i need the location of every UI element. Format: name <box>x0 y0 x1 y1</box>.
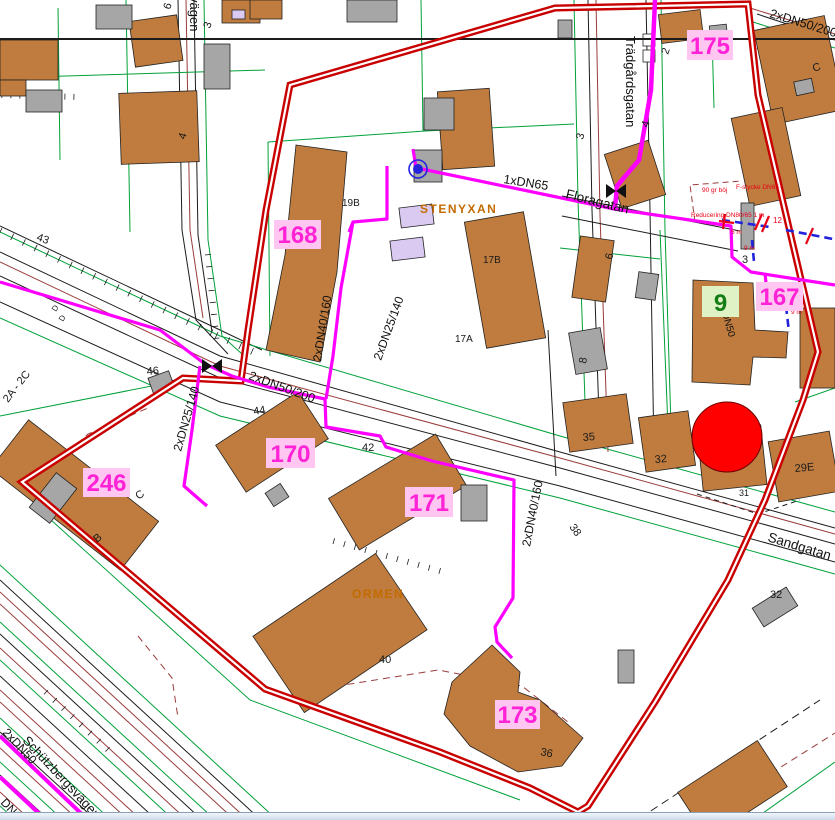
road-line <box>0 592 249 820</box>
hatch-tick <box>212 326 218 327</box>
building <box>232 10 245 19</box>
red-tick-mark <box>719 221 734 223</box>
hatch-tick <box>354 544 356 550</box>
valve-icon[interactable] <box>202 359 222 373</box>
area-badge-173[interactable]: 173 <box>495 700 540 729</box>
manhole-icon[interactable] <box>413 164 423 174</box>
map-canvas[interactable]: TrädgårdsgatanvägenFloragatanSandgatanSc… <box>0 0 835 820</box>
map-svg[interactable]: TrädgårdsgatanvägenFloragatanSandgatanSc… <box>0 0 835 820</box>
plot-number-label: 32 <box>654 453 667 466</box>
hatch-tick <box>428 565 430 571</box>
plot-number-label: 35 <box>582 431 595 444</box>
red-annotation-label: 5 m <box>731 229 742 236</box>
plot-number-label: D <box>57 313 68 323</box>
building <box>253 553 427 712</box>
plot-number-label: 42 <box>362 442 374 454</box>
hatch-tick <box>105 747 109 751</box>
building <box>26 90 62 112</box>
hatch-tick <box>251 348 254 354</box>
red-annotation-label: 90 gr böj <box>702 187 727 194</box>
plot-number-label: 17B <box>483 255 501 266</box>
hatch-tick <box>206 266 212 267</box>
plot-number-label: 3 <box>201 20 214 30</box>
area-badge-168[interactable]: 168 <box>274 220 321 249</box>
hatch-tick <box>397 556 399 562</box>
road-line <box>0 634 203 820</box>
pipe-dimension-label: 2xDN25/140 <box>170 385 202 453</box>
area-badge-171[interactable]: 171 <box>405 487 453 517</box>
plot-number-label: 44 <box>252 404 266 418</box>
plot-number-label: 2 <box>659 46 672 56</box>
hatch-tick <box>88 731 92 735</box>
area-badge-167[interactable]: 167 <box>756 282 803 311</box>
area-badge-label: 173 <box>497 702 537 729</box>
building <box>96 5 132 29</box>
hatch-tick <box>213 338 219 339</box>
building <box>618 650 634 683</box>
hatch-tick <box>418 562 420 568</box>
plot-number-label: D <box>50 303 61 313</box>
building <box>569 328 608 375</box>
hatch-tick <box>97 739 101 743</box>
red-annotation-label: Reducering DN80/65 1 m <box>691 212 764 219</box>
road-line <box>548 330 556 476</box>
road-line <box>421 0 423 131</box>
pipe-dimension-label: 2xDN50/200 <box>247 369 317 406</box>
area-badge-label: 170 <box>270 441 310 468</box>
building <box>265 483 289 506</box>
hatch-tick <box>365 547 367 553</box>
building <box>204 44 230 89</box>
hatch-tick <box>239 343 242 349</box>
plot-number-label: C <box>133 488 147 502</box>
hatch-tick <box>407 559 409 565</box>
building <box>390 237 425 261</box>
road-line <box>138 636 178 718</box>
red-annotation-label: 9 m <box>744 245 755 252</box>
area-badge-label: 9 <box>714 290 727 317</box>
plot-number-label: 19B <box>342 198 360 209</box>
hatch-tick <box>210 302 216 303</box>
plot-number-label: 17A <box>455 334 473 345</box>
road-line <box>0 226 262 350</box>
plot-number-label: 6 <box>161 1 174 11</box>
area-badge-label: 168 <box>277 222 317 249</box>
area-badge-246[interactable]: 246 <box>83 468 130 497</box>
red-annotation-label: F-stycke DN65 <box>736 184 779 191</box>
plot-number-label: 32 <box>770 589 782 601</box>
hatch-tick <box>209 290 215 291</box>
building <box>0 40 58 80</box>
building <box>424 98 454 130</box>
plot-number-label: 38 <box>567 522 584 539</box>
road-line <box>0 565 278 820</box>
plot-number-label: 31 <box>739 488 749 498</box>
window-bottom-edge <box>0 812 835 820</box>
plot-number-label: 40 <box>379 654 391 666</box>
block-name-label: ORMEN <box>352 587 404 601</box>
road-line <box>0 622 216 820</box>
road-line <box>660 230 668 428</box>
building <box>129 15 183 67</box>
building <box>119 91 199 165</box>
area-badge-label: 171 <box>409 490 449 517</box>
hatch-tick <box>439 568 441 574</box>
road-line <box>268 124 574 142</box>
hatch-tick <box>344 541 346 547</box>
plot-number-label: 2A - 2C <box>1 369 33 405</box>
hatch-tick <box>207 278 213 279</box>
building <box>635 272 658 301</box>
plot-number-label: 3 <box>742 254 748 266</box>
red-annotation-label: 12 <box>773 216 782 225</box>
plot-number-label: 36 <box>539 746 553 760</box>
road-line <box>58 8 60 160</box>
building <box>558 20 572 38</box>
area-badge-9[interactable]: 9 <box>702 286 739 317</box>
area-badge-label: 246 <box>86 470 126 497</box>
area-badge-175[interactable]: 175 <box>687 30 733 60</box>
building <box>678 741 788 820</box>
plot-number-label: 46 <box>146 365 159 378</box>
selected-location-marker[interactable] <box>692 402 762 472</box>
building <box>461 485 487 521</box>
hatch-tick <box>386 553 388 559</box>
building <box>563 394 633 452</box>
area-badge-label: 175 <box>690 33 730 60</box>
hatch-tick <box>333 538 335 544</box>
building <box>464 212 545 348</box>
street-name-label: vägen <box>187 0 202 31</box>
hatch-tick <box>0 228 2 234</box>
area-badge-label: 167 <box>759 284 799 311</box>
area-badge-170[interactable]: 170 <box>266 438 315 468</box>
plot-number-label: 43 <box>35 232 51 247</box>
plot-number-label: 3 <box>574 132 587 141</box>
building <box>572 236 614 302</box>
street-name-label: Trädgårdsgatan <box>623 36 638 127</box>
building <box>347 0 397 22</box>
plot-number-label: 29E <box>794 461 815 475</box>
hatch-tick <box>211 314 217 315</box>
building <box>250 0 282 19</box>
pipe-dimension-label: 2xDN25/140 <box>371 294 407 362</box>
block-name-label: STENYXAN <box>420 202 497 216</box>
building <box>0 80 26 96</box>
